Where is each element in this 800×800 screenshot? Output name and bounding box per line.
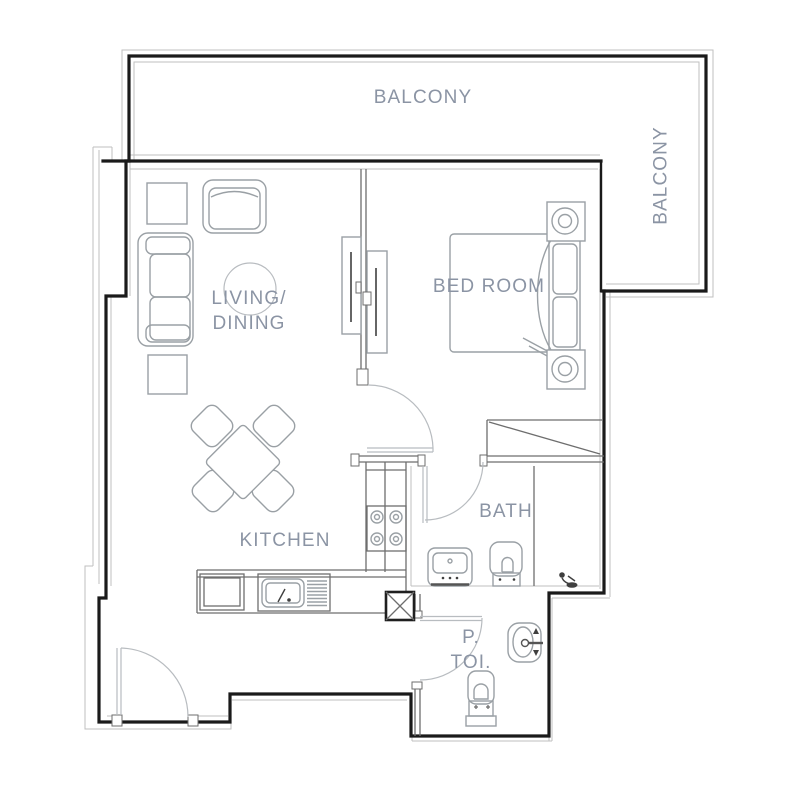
bath-vanity	[428, 548, 472, 586]
fridge-icon	[386, 592, 414, 620]
stove	[367, 506, 406, 551]
bath-toilet	[490, 542, 522, 586]
bedroom-closet	[487, 420, 602, 456]
kitchen-sink	[258, 574, 330, 611]
bedroom-door	[367, 385, 433, 452]
entrance-door	[112, 648, 198, 726]
nightstand-bottom	[547, 350, 585, 389]
wall-face-lines	[85, 50, 713, 741]
dining-set	[188, 402, 298, 515]
label-balcony-right: BALCONY	[649, 116, 674, 236]
nightstand-top	[547, 202, 585, 241]
bath-door-jamb-left	[418, 455, 425, 466]
floor-plan-page: BALCONY BALCONY LIVING/ DINING BED ROOM …	[0, 0, 800, 800]
bedroom-door-arc	[368, 385, 433, 448]
entrance-door-arc	[121, 648, 188, 717]
label-living-line2: DINING	[189, 311, 309, 336]
label-bedroom: BED ROOM	[419, 274, 559, 299]
shower-icon	[559, 572, 577, 588]
label-powder-toilet: P. TOI.	[411, 625, 531, 675]
living-room-furniture	[138, 180, 298, 515]
ptoi-toilet	[466, 671, 496, 726]
label-living-dining: LIVING/ DINING	[189, 286, 309, 336]
label-living-line1: LIVING/	[189, 286, 309, 311]
bedroom-door-jamb	[357, 369, 368, 385]
label-kitchen: KITCHEN	[215, 528, 355, 553]
kitchen-counter	[197, 570, 406, 613]
label-ptoi-line2: TOI.	[411, 650, 531, 675]
label-balcony-top: BALCONY	[363, 85, 483, 110]
label-ptoi-line1: P.	[411, 625, 531, 650]
armchair	[203, 180, 266, 233]
side-table-bottom	[148, 355, 187, 394]
ptoi-door-jamb-bottom	[412, 682, 422, 689]
side-table-top	[147, 183, 187, 224]
sofa	[138, 233, 193, 346]
wardrobe	[342, 237, 387, 353]
label-bath: BATH	[446, 499, 566, 524]
floor-plan-drawing	[0, 0, 800, 800]
